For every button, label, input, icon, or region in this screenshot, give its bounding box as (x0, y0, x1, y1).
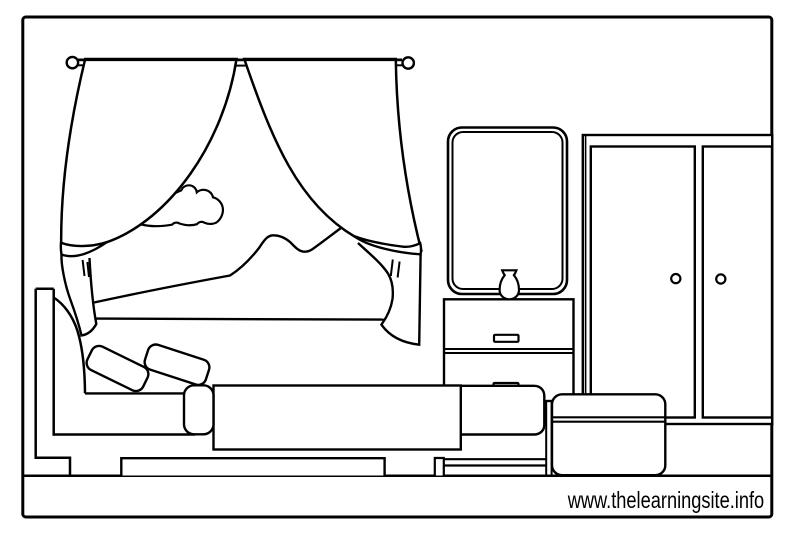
svg-text:www.thelearningsite.info: www.thelearningsite.info (567, 488, 764, 514)
